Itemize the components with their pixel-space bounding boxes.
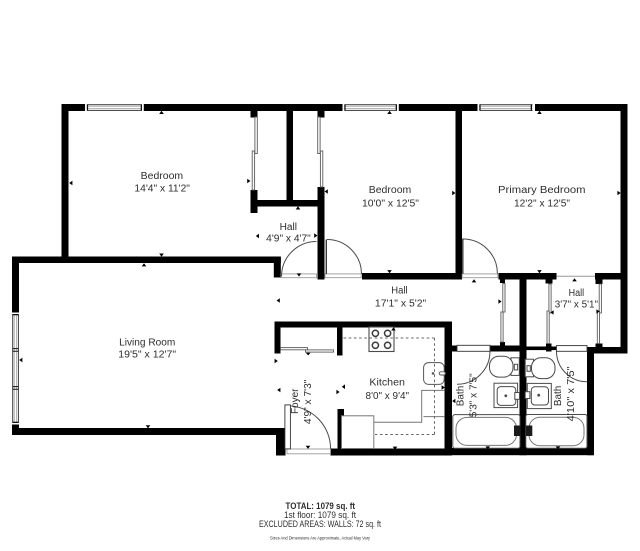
svg-text:Bath: Bath (456, 386, 467, 407)
svg-text:14'4" x 11'2": 14'4" x 11'2" (134, 183, 190, 194)
svg-text:Sizes And Dimensions Are Appro: Sizes And Dimensions Are Approximate, Ac… (270, 536, 370, 542)
svg-text:17'1" x 5'2": 17'1" x 5'2" (375, 299, 427, 310)
svg-text:4'9" x 7'3": 4'9" x 7'3" (303, 379, 314, 424)
svg-text:Living Room: Living Room (119, 337, 175, 348)
svg-text:12'2" x 12'5": 12'2" x 12'5" (514, 198, 570, 209)
svg-text:10'0" x 12'5": 10'0" x 12'5" (362, 198, 419, 209)
svg-text:Kitchen: Kitchen (369, 378, 405, 389)
svg-text:Bath: Bath (553, 386, 564, 407)
svg-text:19'5" x 12'7": 19'5" x 12'7" (118, 349, 176, 360)
svg-text:4'10" x 7'5": 4'10" x 7'5" (566, 366, 577, 421)
svg-text:8'0" x 9'4": 8'0" x 9'4" (366, 391, 410, 402)
svg-text:EXCLUDED AREAS: WALLS: 72 sq.: EXCLUDED AREAS: WALLS: 72 sq. ft (259, 519, 381, 530)
svg-text:Foyer: Foyer (290, 388, 301, 414)
svg-text:Primary Bedroom: Primary Bedroom (498, 185, 586, 196)
svg-text:4'9" x 4'7": 4'9" x 4'7" (266, 234, 311, 245)
svg-text:3'7" x 5'1": 3'7" x 5'1" (555, 300, 599, 311)
svg-text:Hall: Hall (569, 288, 585, 299)
svg-text:Hall: Hall (280, 222, 297, 233)
svg-text:Bedroom: Bedroom (369, 185, 412, 196)
svg-text:Bedroom: Bedroom (141, 171, 184, 182)
svg-text:Hall: Hall (391, 286, 407, 297)
svg-text:5'3" x 7'5": 5'3" x 7'5" (468, 373, 479, 417)
